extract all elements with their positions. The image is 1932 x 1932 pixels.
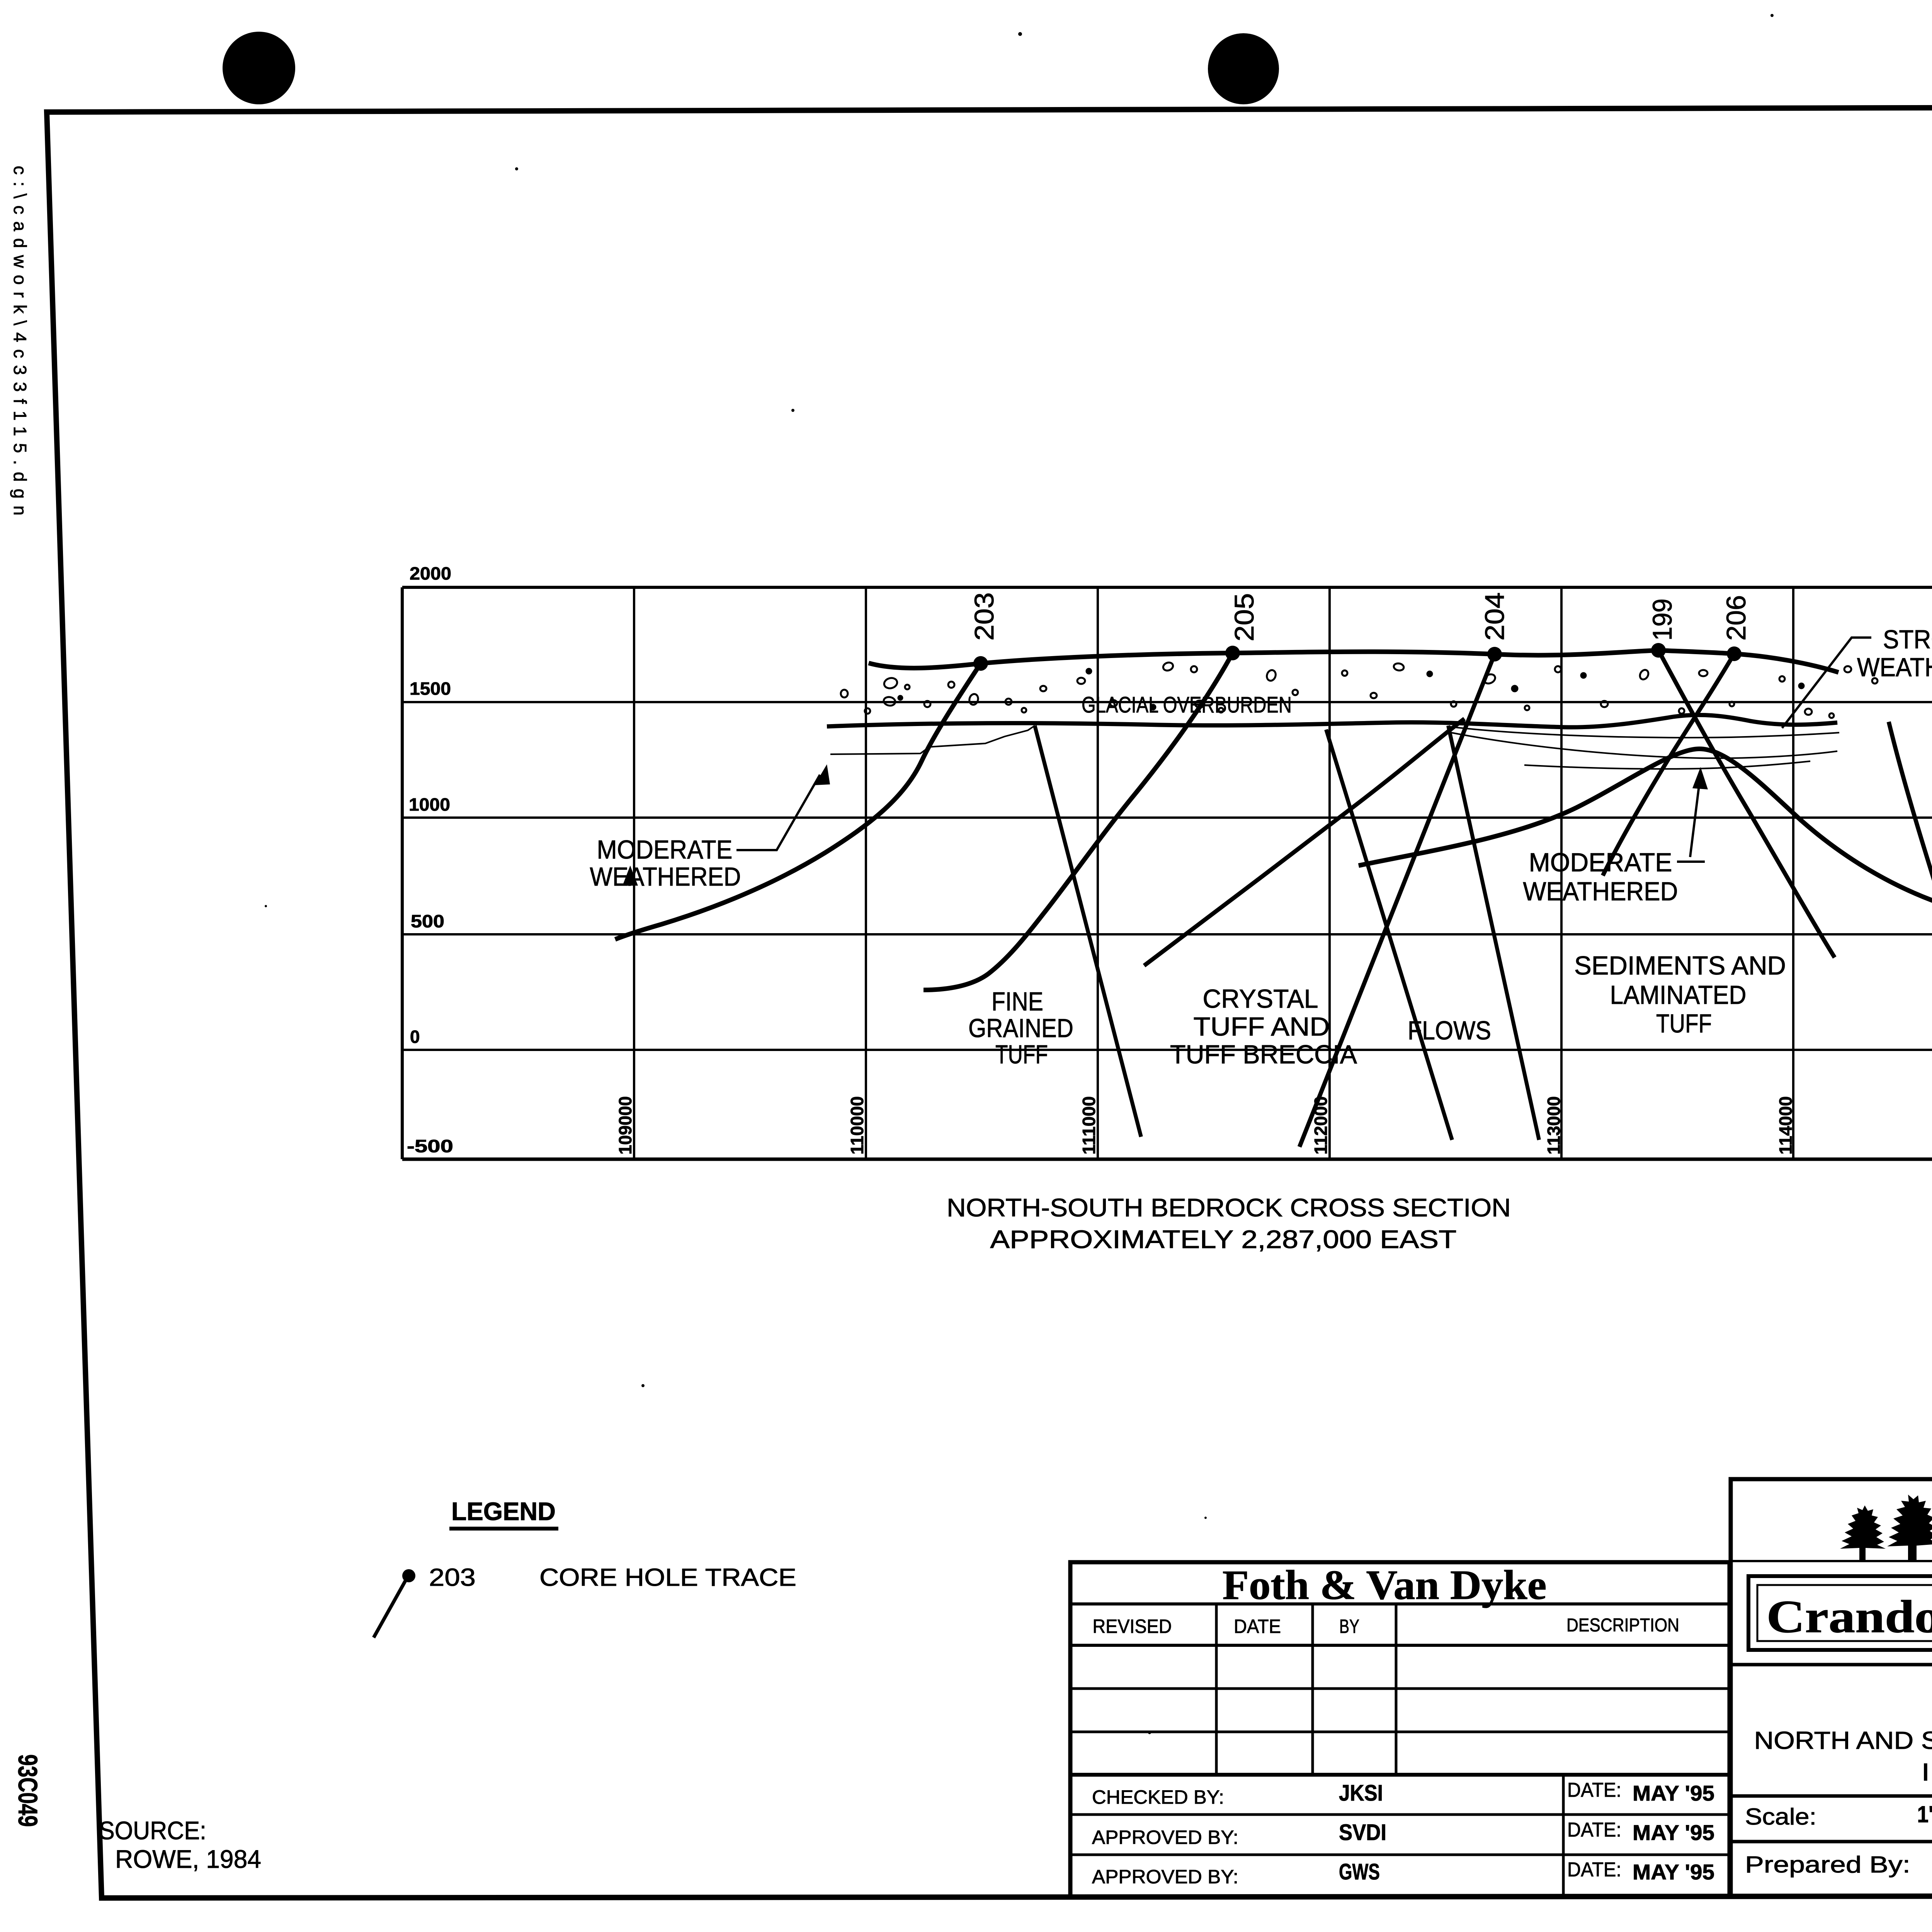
svg-text:1''=1000': 1''=1000'	[1917, 1801, 1932, 1827]
svg-text:CORE HOLE TRACE: CORE HOLE TRACE	[539, 1563, 796, 1591]
svg-text:GRAINED: GRAINED	[968, 1014, 1073, 1043]
svg-text:APPROVED BY:: APPROVED BY:	[1092, 1827, 1238, 1848]
svg-text:Crandon Mining Company: Crandon Mining Company	[1767, 1591, 1932, 1643]
svg-text:FINE: FINE	[992, 987, 1043, 1016]
svg-text:SOURCE:: SOURCE:	[99, 1816, 206, 1845]
svg-text:CHECKED BY:: CHECKED BY:	[1092, 1786, 1224, 1808]
svg-text:1000: 1000	[409, 794, 450, 815]
svg-text:REVISED: REVISED	[1093, 1616, 1172, 1637]
svg-text:MAY '95: MAY '95	[1633, 1781, 1714, 1805]
svg-text:APPROVED BY:: APPROVED BY:	[1092, 1866, 1238, 1888]
svg-text:LEGEND: LEGEND	[451, 1497, 556, 1526]
svg-text:206: 206	[1721, 595, 1751, 641]
svg-text:203: 203	[429, 1563, 476, 1591]
svg-text:ROWE, 1984: ROWE, 1984	[115, 1845, 261, 1873]
svg-text:DATE:: DATE:	[1567, 1779, 1621, 1801]
svg-text:MODERATE: MODERATE	[1529, 848, 1672, 877]
svg-text:WEATHERED: WEATHERED	[1857, 653, 1932, 682]
svg-text:Prepared By:: Prepared By:	[1745, 1852, 1910, 1878]
svg-text:GLACIAL OVERBURDEN: GLACIAL OVERBURDEN	[1082, 692, 1292, 718]
svg-text:TUFF AND: TUFF AND	[1194, 1012, 1330, 1041]
svg-text:FLOWS: FLOWS	[1408, 1016, 1491, 1045]
svg-text:NORTH-SOUTH BEDROCK CROSS SECT: NORTH-SOUTH BEDROCK CROSS SECTION	[947, 1193, 1511, 1222]
svg-text:204: 204	[1480, 592, 1510, 641]
svg-text:TUFF: TUFF	[1656, 1009, 1712, 1038]
svg-text:JKSI: JKSI	[1339, 1781, 1383, 1806]
svg-text:WEATHERED: WEATHERED	[590, 862, 741, 891]
svg-text:WEATHERED: WEATHERED	[1523, 877, 1678, 906]
svg-text:2000: 2000	[410, 563, 451, 583]
svg-text:SEDIMENTS AND: SEDIMENTS AND	[1574, 951, 1786, 980]
svg-text:113000: 113000	[1544, 1096, 1564, 1155]
svg-text:114000: 114000	[1776, 1096, 1796, 1155]
svg-text:203: 203	[969, 592, 999, 641]
svg-text:110000: 110000	[847, 1096, 867, 1155]
svg-text:205: 205	[1229, 593, 1259, 641]
svg-text:-500: -500	[407, 1136, 453, 1156]
svg-text:LAMINATED: LAMINATED	[1610, 980, 1747, 1010]
svg-text:CRYSTAL: CRYSTAL	[1203, 984, 1318, 1014]
svg-text:DATE: DATE	[1234, 1616, 1281, 1637]
svg-text:500: 500	[411, 911, 444, 931]
svg-text:Foth & Van Dyke: Foth & Van Dyke	[1223, 1562, 1547, 1608]
svg-text:DESCRIPTION: DESCRIPTION	[1566, 1615, 1679, 1636]
svg-text:112000: 112000	[1311, 1096, 1331, 1155]
svg-text:0: 0	[410, 1027, 420, 1047]
svg-text:STRONG: STRONG	[1883, 625, 1932, 654]
svg-text:GWS: GWS	[1339, 1859, 1380, 1884]
svg-text:MAY '95: MAY '95	[1633, 1820, 1714, 1845]
svg-text:Scale:: Scale:	[1745, 1804, 1816, 1830]
svg-text:199: 199	[1647, 599, 1677, 641]
svg-text:1500: 1500	[410, 679, 451, 699]
svg-text:TUFF: TUFF	[995, 1040, 1048, 1069]
svg-text:APPROXIMATELY 2,287,000 EAST: APPROXIMATELY 2,287,000 EAST	[990, 1225, 1457, 1253]
svg-text:NORTH AND SOUTH BEDROCK CROSS: NORTH AND SOUTH BEDROCK CROSS SECTION	[1754, 1726, 1932, 1754]
svg-text:TUFF BRECCIA: TUFF BRECCIA	[1170, 1040, 1357, 1069]
svg-text:IN VICINITY OF TMA: IN VICINITY OF TMA	[1922, 1758, 1932, 1786]
svg-text:BY: BY	[1339, 1616, 1359, 1637]
svg-text:MODERATE: MODERATE	[597, 835, 733, 864]
svg-text:DATE:: DATE:	[1567, 1859, 1621, 1881]
svg-text:MAY '95: MAY '95	[1633, 1860, 1714, 1884]
svg-text:109000: 109000	[615, 1096, 635, 1155]
svg-text:111000: 111000	[1079, 1096, 1099, 1155]
svg-text:93C049: 93C049	[13, 1754, 43, 1827]
svg-text:SVDI: SVDI	[1339, 1820, 1386, 1845]
svg-text:DATE:: DATE:	[1567, 1819, 1621, 1841]
